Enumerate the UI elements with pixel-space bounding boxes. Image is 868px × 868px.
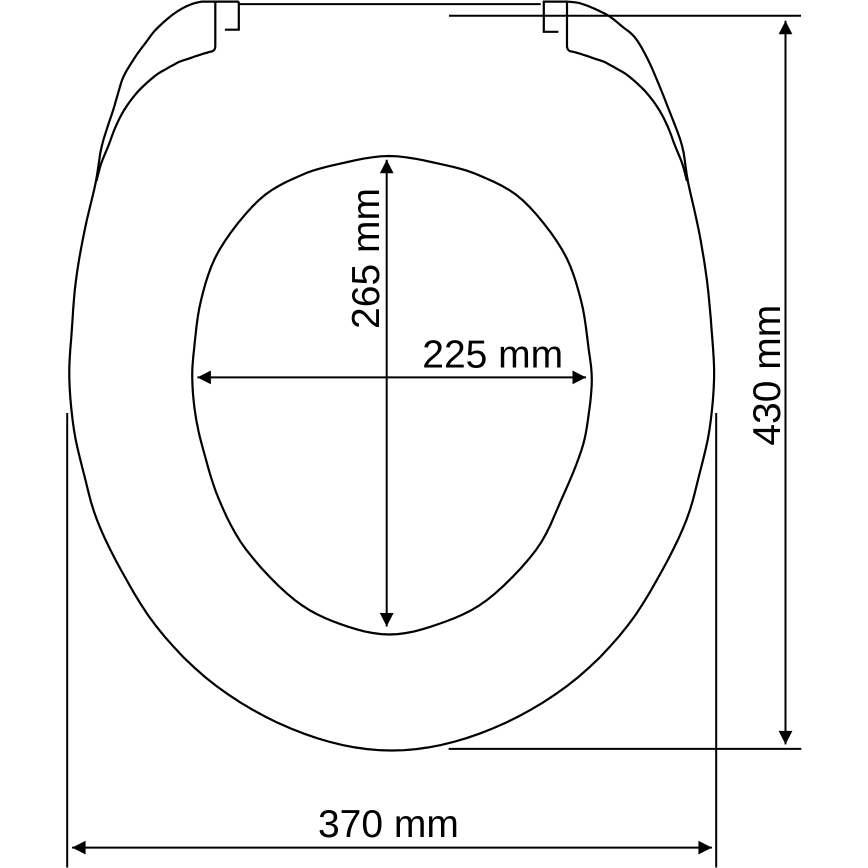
svg-text:430 mm: 430 mm <box>746 305 789 446</box>
svg-text:265 mm: 265 mm <box>345 188 388 329</box>
svg-text:370 mm: 370 mm <box>318 803 459 846</box>
svg-text:225 mm: 225 mm <box>422 334 563 377</box>
